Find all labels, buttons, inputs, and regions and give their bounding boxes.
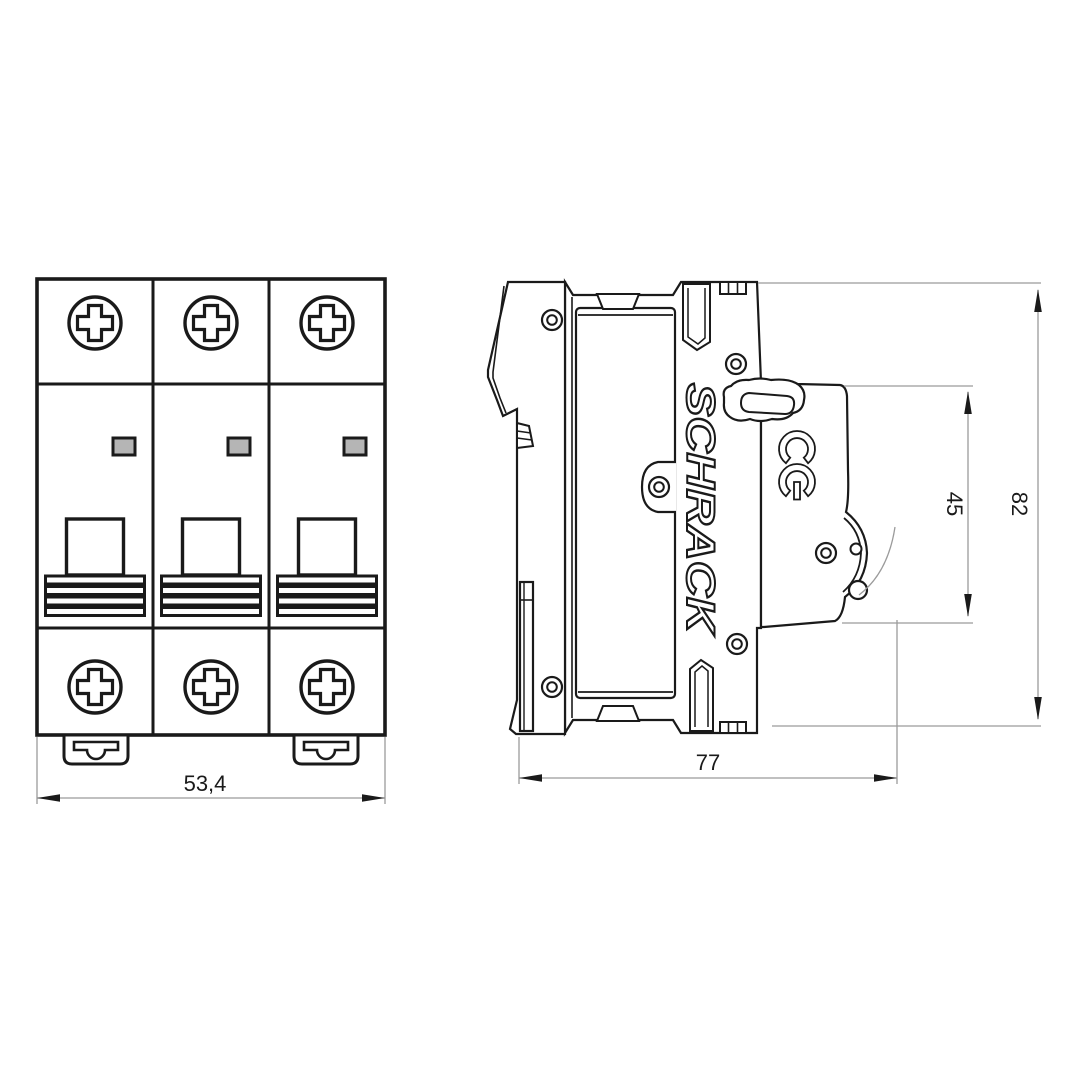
screw-terminal-icon — [301, 661, 353, 713]
screw-terminal-icon — [69, 297, 121, 349]
screw-terminal-icon — [185, 661, 237, 713]
screw-terminal-icon — [301, 297, 353, 349]
indicator-window — [344, 438, 366, 455]
arrowhead-up-icon — [1034, 289, 1042, 312]
rivet-icon — [816, 543, 836, 563]
arrowhead-left-icon — [519, 774, 542, 782]
dovetail-guide-top — [597, 294, 639, 309]
rivet-icon — [649, 477, 669, 497]
rivet-icon — [727, 634, 747, 654]
side-view: SCHRACK 77 45 — [488, 282, 1042, 784]
terminal-comb-top — [720, 282, 746, 294]
screw-terminal-icon — [185, 297, 237, 349]
ce-letter-e-bar — [794, 482, 800, 500]
din-rail-clip — [294, 735, 358, 764]
arrowhead-down-icon — [964, 594, 972, 617]
rivet-icon — [726, 354, 746, 374]
screw-terminal-icon — [69, 661, 121, 713]
breaker-dimensional-drawing: 53,4 — [0, 0, 1080, 1080]
arrowhead-down-icon — [1034, 697, 1042, 720]
arrowhead-left-icon — [37, 794, 60, 802]
arrowhead-up-icon — [964, 391, 972, 414]
technical-drawing-page: 53,4 — [0, 0, 1080, 1080]
pivot-pin — [851, 544, 862, 555]
dovetail-guide-bottom — [597, 706, 639, 721]
din-rail-clip — [64, 735, 128, 764]
indicator-window — [113, 438, 135, 455]
din-release-slider — [520, 582, 533, 731]
terminal-comb-bottom — [720, 722, 746, 733]
rivet-icon — [542, 310, 562, 330]
terminal-fin-bottom — [690, 660, 713, 731]
dimension-label-height: 82 — [1007, 492, 1032, 516]
arrowhead-right-icon — [362, 794, 385, 802]
toggle-lever-side — [724, 379, 805, 422]
toggle-recess — [741, 393, 794, 414]
brand-marking: SCHRACK — [678, 383, 722, 637]
rivet-icon — [542, 677, 562, 697]
front-view: 53,4 — [37, 279, 385, 804]
dimension-label-depth: 77 — [696, 750, 720, 775]
terminal-fin-top — [683, 284, 710, 350]
indicator-window — [228, 438, 250, 455]
dimension-label-width: 53,4 — [184, 771, 227, 796]
arrowhead-right-icon — [874, 774, 897, 782]
dimension-label-front-section: 45 — [942, 492, 967, 516]
